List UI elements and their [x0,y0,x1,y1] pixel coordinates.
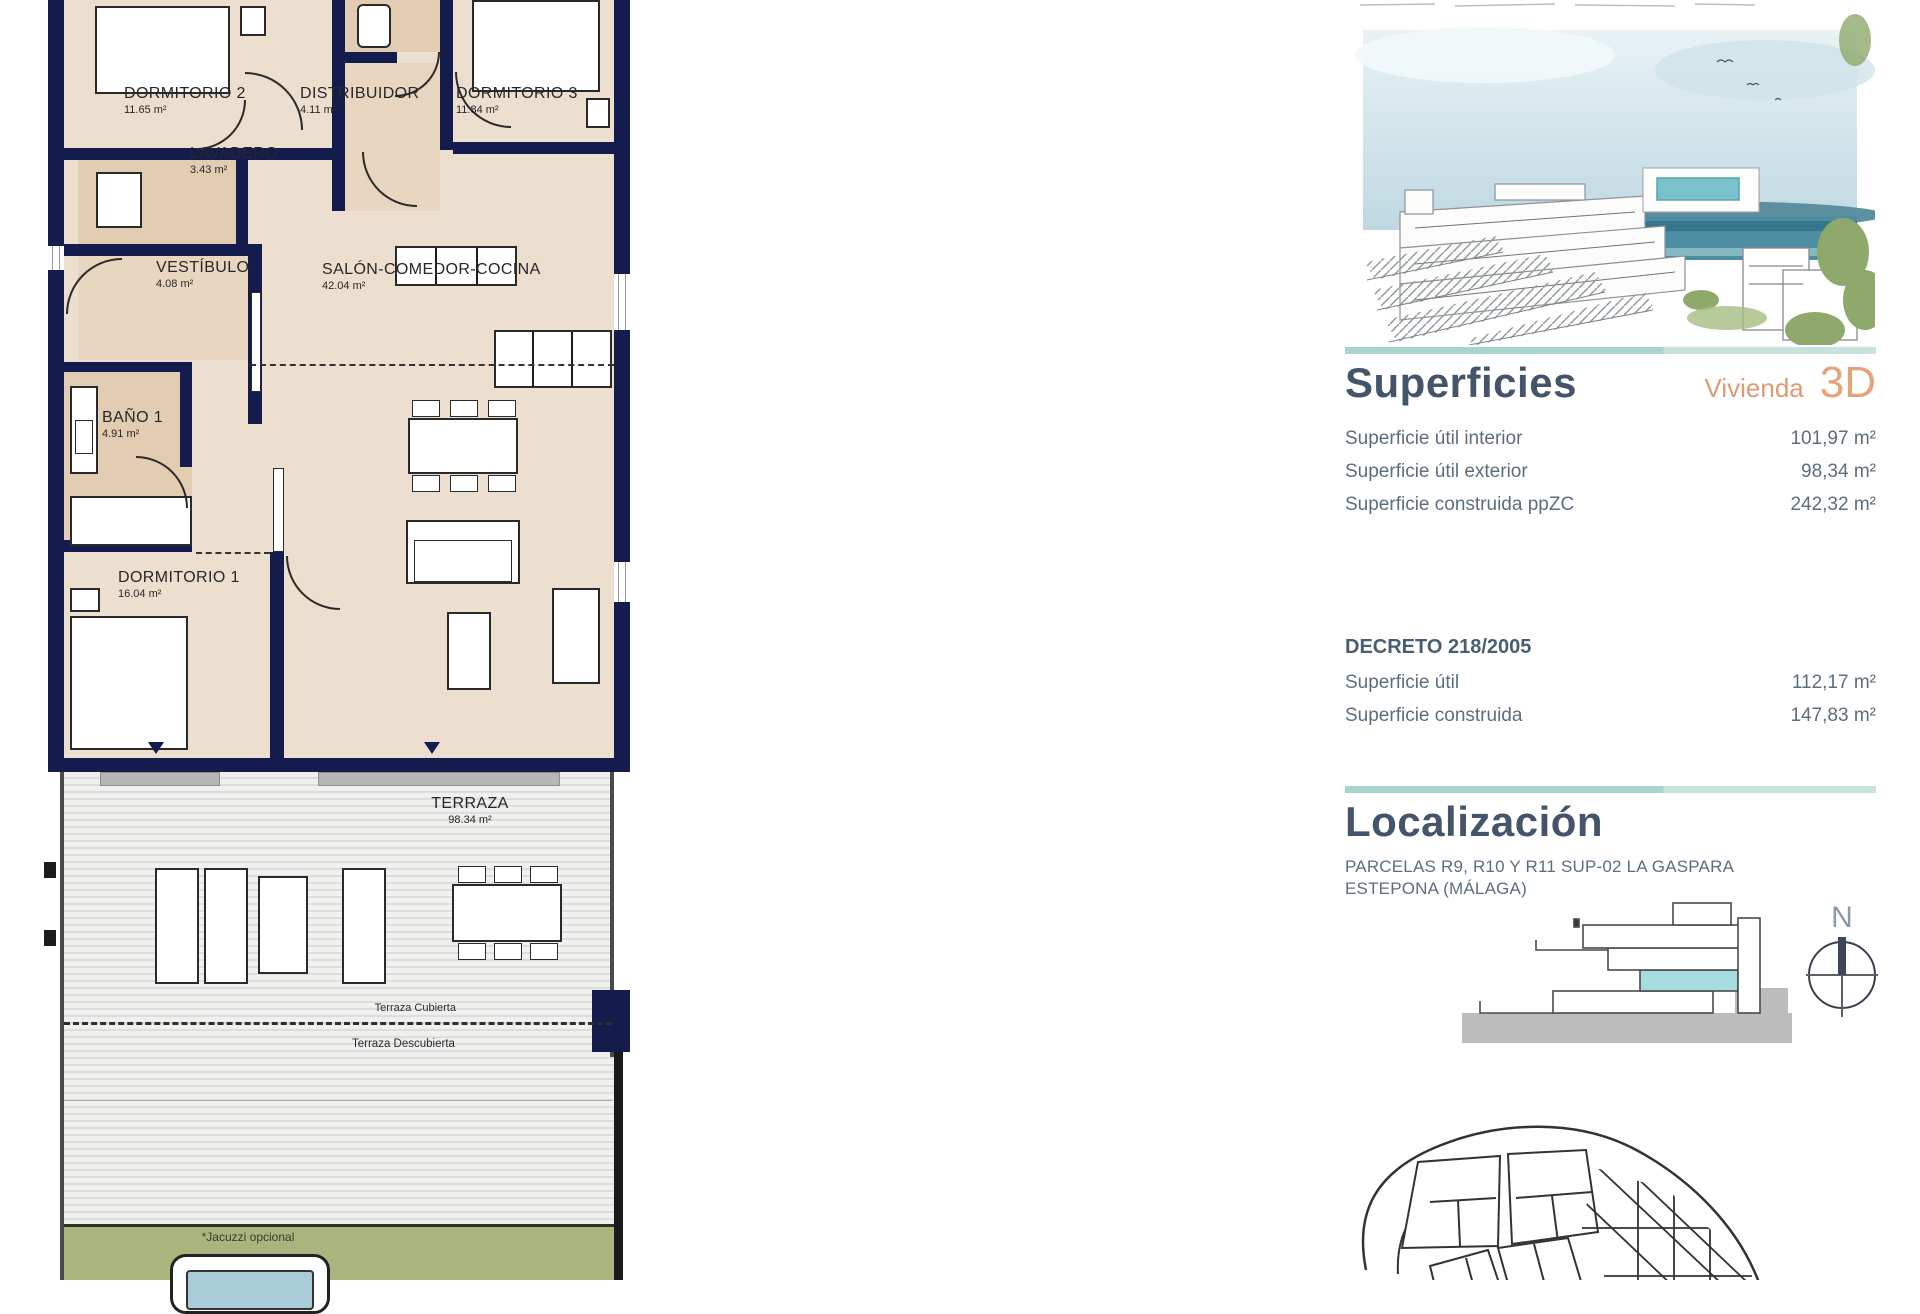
terrace-chair [458,943,486,960]
window-right-1 [614,274,630,330]
watercolor-rendering [1345,0,1875,345]
superficie-value: 242,32 m² [1790,494,1876,516]
superficie-value: 101,97 m² [1790,428,1876,450]
room-label-dormitorio-2: DORMITORIO 2 11.65 m² [124,86,246,116]
hall-dashed-line [196,552,270,554]
floor-plan: DORMITORIO 2 11.65 m² DISTRIBUIDOR 4.11 … [0,0,660,1280]
terrace-door-sill [318,772,560,786]
room-area: 11.65 m² [124,105,246,117]
decreto-title: DECRETO 218/2005 [1345,636,1876,659]
nightstand-dormitorio2 [240,6,266,36]
sun-lounger [204,868,248,984]
sink-bano1 [75,420,93,454]
terrace-side-table [258,876,308,974]
building-section-diagram: N [1448,893,1920,1048]
superficie-row: Superficie útil interior 101,97 m² [1345,428,1876,450]
window-right-2 [614,562,630,602]
room-name: TERRAZA [400,796,540,813]
superficie-label: Superficie construida ppZC [1345,494,1574,516]
room-label-dormitorio-3: DORMITORIO 3 11.84 m² [456,86,578,116]
room-name: DISTRIBUIDOR [300,86,419,103]
kitchen-divider [571,332,573,386]
toilet-top-bath [357,4,391,48]
terrace-covered-boundary [64,1022,612,1025]
superficie-value: 147,83 m² [1790,705,1876,727]
room-label-bano-1: BAÑO 1 4.91 m² [102,410,163,440]
kitchen-counter-right [494,330,612,388]
room-name: LAVADERO [190,146,278,163]
garden-area [64,1224,614,1280]
wall-section-tick [44,862,56,878]
room-label-lavadero: LAVADERO 3.43 m² [190,146,278,176]
wall-lavadero-bottom [64,244,248,256]
terrace-edge-left [60,772,64,1280]
door-marker-triangle [424,742,440,754]
room-name: BAÑO 1 [102,410,163,427]
wall-bano1-right [180,362,192,467]
kitchen-divider [532,332,534,386]
terrace-chair [530,866,558,883]
wall-bottom [64,758,614,772]
site-plan-diagram [1338,1098,1768,1280]
terrace-door-sill [100,772,220,786]
terrace-chair [494,866,522,883]
superficie-label: Superficie útil [1345,672,1459,694]
dining-table [408,418,518,474]
superficie-label: Superficie construida [1345,705,1522,727]
terrace-wall-block [592,990,630,1052]
pillar-hall [273,468,284,552]
bed-dormitorio2 [95,6,230,94]
room-area: 98.34 m² [400,815,540,827]
room-label-dormitorio-1: DORMITORIO 1 16.04 m² [118,570,240,600]
superficies-table: Superficie útil interior 101,97 m² Super… [1345,428,1876,527]
superficie-value: 98,34 m² [1801,461,1876,483]
sun-lounger [342,868,386,984]
room-area: 16.04 m² [118,589,240,601]
section-illustration: N [1448,893,1920,1048]
jacuzzi-pool [186,1270,314,1310]
room-label-distribuidor: DISTRIBUIDOR 4.11 m² [300,86,419,116]
teal-divider-bottom [1345,786,1876,793]
terrace-chair [494,943,522,960]
dining-chair [450,475,478,492]
room-name: SALÓN-COMEDOR-COCINA [322,262,541,279]
room-label-salon: SALÓN-COMEDOR-COCINA 42.04 m² [322,262,541,292]
terrace-edge-right-lower [614,1052,623,1280]
window-left [48,246,64,270]
tv-bench [447,612,491,690]
dining-chair [450,400,478,417]
compass-n-label: N [1831,901,1853,934]
superficie-label: Superficie útil exterior [1345,461,1528,483]
terrace-chair [458,866,486,883]
superficie-row: Superficie construida ppZC 242,32 m² [1345,494,1876,516]
terrace-uncovered-label: Terraza Descubierta [352,1038,455,1050]
room-area: 11.84 m² [456,105,578,117]
sideboard [552,588,600,684]
localizacion-title: Localización [1345,798,1603,846]
sofa-seat [414,540,512,582]
dining-chair [488,475,516,492]
vivienda-label: Vivienda [1704,373,1803,404]
nightstand-dormitorio3 [586,98,610,128]
superficie-row: Superficie útil exterior 98,34 m² [1345,461,1876,483]
terrace-deck [64,772,614,1224]
sun-lounger [155,868,199,984]
superficie-row: Superficie construida 147,83 m² [1345,705,1876,727]
wall-dorm3-bottom [453,142,614,154]
terrace-section-line [64,1100,612,1101]
nightstand-dormitorio1 [70,588,100,612]
site-plan-illustration [1338,1098,1768,1280]
room-area: 3.43 m² [190,165,278,177]
teal-divider-top [1345,347,1876,354]
room-area: 4.08 m² [156,279,249,291]
room-label-vestibulo: VESTÍBULO 4.08 m² [156,260,249,290]
superficie-row: Superficie útil 112,17 m² [1345,672,1876,694]
vivienda-value: 3D [1820,358,1876,408]
rendering-illustration [1345,0,1875,345]
door-marker-triangle [148,742,164,754]
closet-vestibulo [251,292,261,392]
dining-chair [488,400,516,417]
wall-right-outer [614,0,630,772]
room-name: DORMITORIO 2 [124,86,246,103]
room-label-terraza: TERRAZA 98.34 m² [400,796,540,826]
superficie-label: Superficie útil interior [1345,428,1522,450]
wall-bano1-top [64,362,192,372]
dining-chair [412,475,440,492]
ceiling-dashed-line [250,364,614,366]
wall-section-tick [44,930,56,946]
room-name: DORMITORIO 1 [118,570,240,587]
terrace-dining-table [452,884,562,942]
bed-dormitorio1 [70,616,188,750]
compass-icon: N [1806,901,1878,1017]
brochure-page: { "plan": { "rooms": [ {"name": "DORMITO… [0,0,1920,1280]
superficies-title: Superficies [1345,359,1577,407]
address-line-1: PARCELAS R9, R10 Y R11 SUP-02 LA GASPARA [1345,856,1876,878]
terrace-chair [530,943,558,960]
wall-topbath-right [440,0,453,150]
wall-left-outer [48,0,64,772]
dining-chair [412,400,440,417]
room-area: 42.04 m² [322,281,541,293]
room-name: DORMITORIO 3 [456,86,578,103]
decreto-section: DECRETO 218/2005 Superficie útil 112,17 … [1345,636,1876,738]
terrace-covered-label: Terraza Cubierta [336,1002,456,1014]
room-area: 4.91 m² [102,429,163,441]
washer-lavadero [96,172,142,228]
wall-dorm1-right [270,552,284,758]
superficie-value: 112,17 m² [1792,672,1876,694]
jacuzzi-note: *Jacuzzi opcional [158,1230,338,1244]
room-area: 4.11 m² [300,105,419,117]
superficies-header: Superficies Vivienda 3D [1345,358,1876,408]
room-name: VESTÍBULO [156,260,249,277]
wall-topbath-bottom [345,52,397,63]
